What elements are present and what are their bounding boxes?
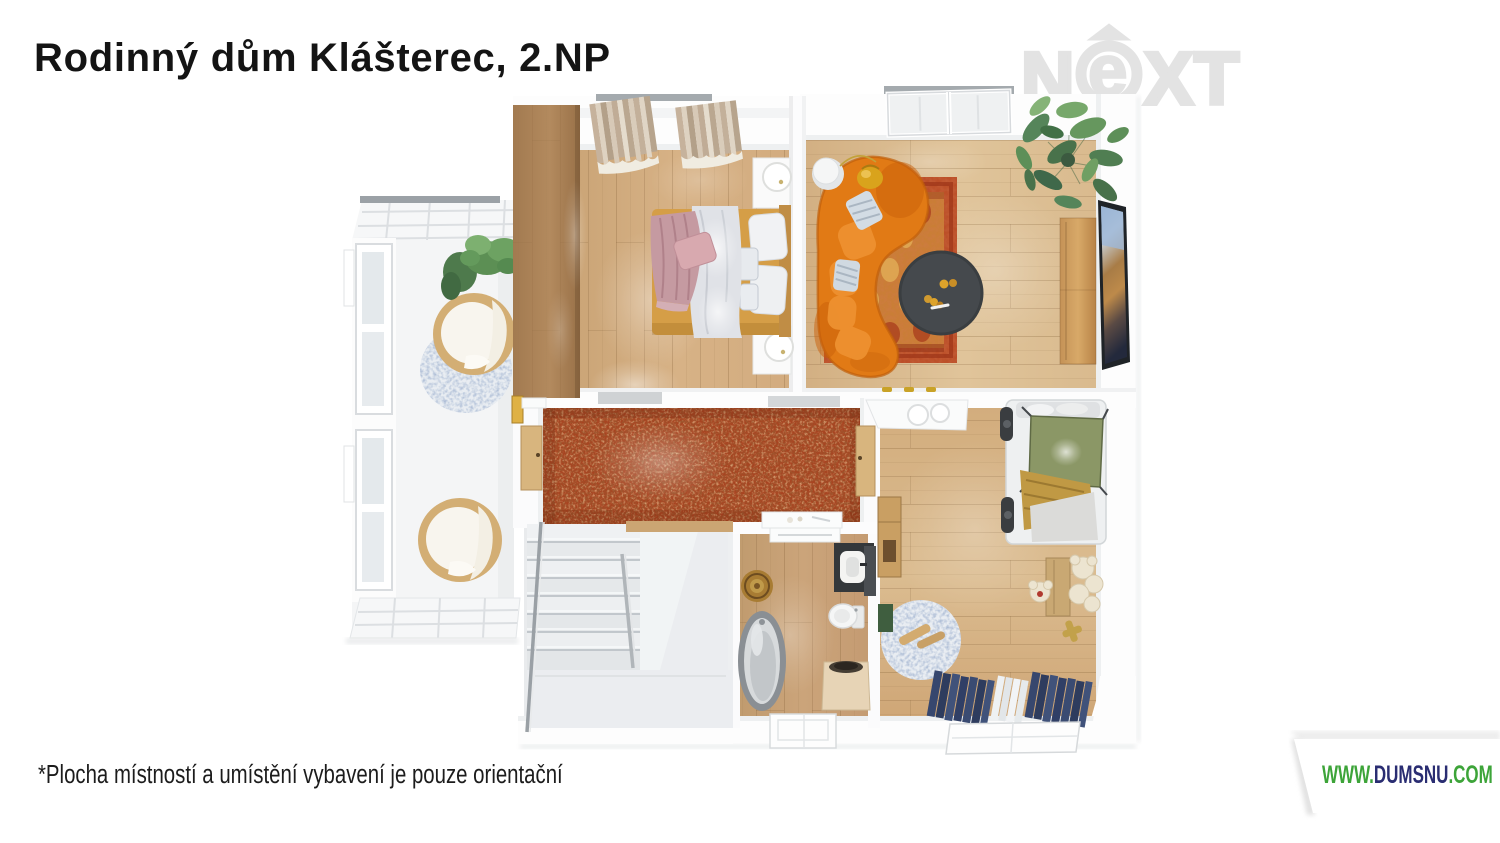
svg-text:X: X: [1144, 37, 1193, 120]
svg-text:Rodinný dům Klášterec, 2.NP: Rodinný dům Klášterec, 2.NP: [34, 36, 611, 80]
svg-text:T: T: [1194, 37, 1239, 120]
svg-text:WWW.DUMSNU.COM: WWW.DUMSNU.COM: [1322, 761, 1493, 789]
svg-text:*Plocha místností a umístění v: *Plocha místností a umístění vybavení je…: [38, 760, 563, 789]
